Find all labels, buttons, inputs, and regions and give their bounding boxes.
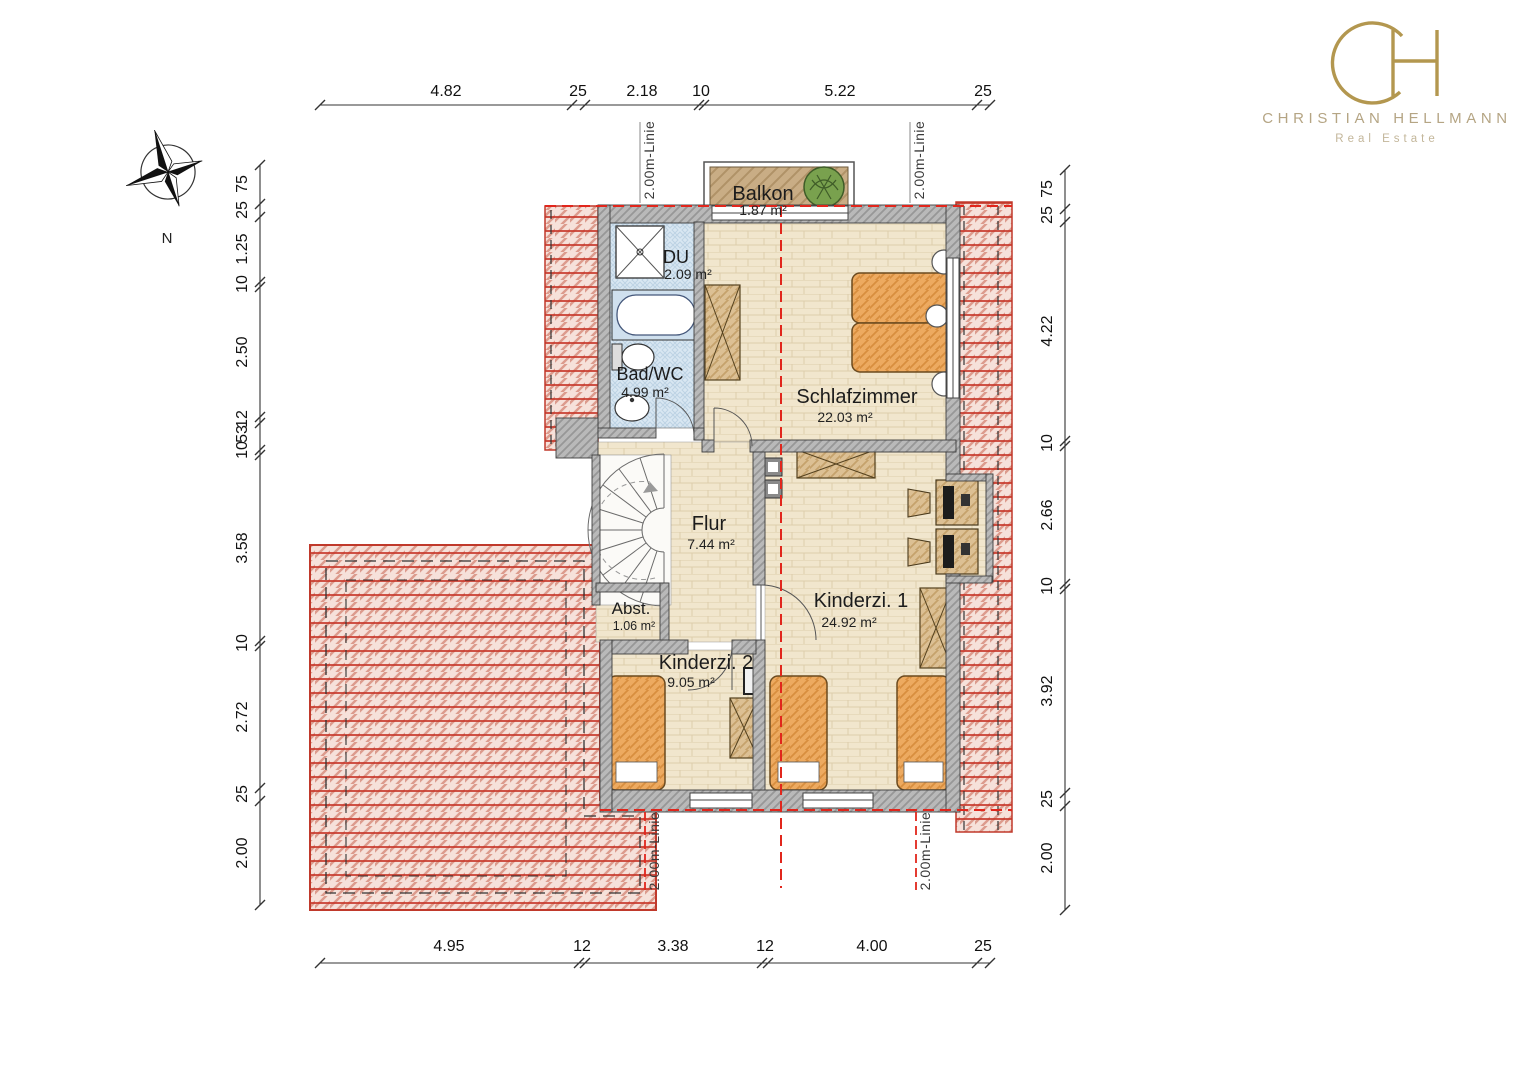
dim-left-5: 2.50 <box>234 336 251 367</box>
label-schlafzimmer-area: 22.03 m² <box>817 409 873 425</box>
height-line-label-bottom-right: 2.00m-Linie <box>917 812 933 891</box>
wall-right-lower <box>946 574 960 812</box>
shaft-1-inner <box>768 462 778 472</box>
dim-bottom-5: 4.00 <box>856 938 887 955</box>
dim-bottom-6: 25 <box>974 938 992 955</box>
wall-bath-bottom-right <box>694 428 704 440</box>
dim-top-6: 25 <box>974 83 992 100</box>
desk-1 <box>936 480 978 525</box>
wall-bay-top <box>946 474 992 481</box>
label-kinderzimmer1-area: 24.92 m² <box>821 614 877 630</box>
monitor-1-icon <box>943 486 954 519</box>
wall-bath-bottom-left <box>598 428 656 438</box>
dim-top-3: 2.18 <box>626 83 657 100</box>
dim-right-9: 2.00 <box>1039 842 1056 873</box>
label-kinderzimmer2-area: 9.05 m² <box>667 674 715 690</box>
monitor-2-icon <box>943 535 954 568</box>
dim-top-5: 5.22 <box>824 83 855 100</box>
dim-right-2: 25 <box>1039 206 1056 224</box>
label-flur-area: 7.44 m² <box>687 536 735 552</box>
label-flur: Flur <box>692 513 727 535</box>
shaft-2-inner <box>768 484 778 494</box>
label-kinderzimmer2: Kinderzi. 2 <box>659 652 754 674</box>
dim-top-2: 25 <box>569 83 587 100</box>
dim-right-5: 2.66 <box>1039 499 1056 530</box>
bathtub-icon <box>617 295 695 335</box>
dim-bottom-3: 3.38 <box>657 938 688 955</box>
chair-2 <box>908 538 930 566</box>
wall-bay-bottom <box>946 576 992 583</box>
dim-right-4: 10 <box>1039 434 1056 452</box>
label-abst-area: 1.06 m² <box>613 619 655 633</box>
wall-left <box>598 205 610 437</box>
wall-stair-outer <box>592 455 600 605</box>
dim-left-11: 2.72 <box>234 701 251 732</box>
wall-storage-top <box>596 583 668 592</box>
bedside-table-icon <box>926 305 948 327</box>
height-line-label-top-left: 2.00m-Linie <box>641 121 657 200</box>
dim-left-8: 10 <box>234 441 251 459</box>
dim-bottom-2: 12 <box>573 938 591 955</box>
dim-right-3: 4.22 <box>1039 315 1056 346</box>
dim-left-1: 75 <box>234 175 251 193</box>
dim-right-7: 3.92 <box>1039 675 1056 706</box>
dim-left-7: 53 <box>234 425 251 443</box>
dim-top-4: 10 <box>692 83 710 100</box>
floor-plan-canvas: 2.00m-Linie 2.00m-Linie 2.00m-Linie 2.00… <box>0 0 1528 1080</box>
dim-right-6: 10 <box>1039 577 1056 595</box>
dim-left-10: 10 <box>234 634 251 652</box>
dim-left-9: 3.58 <box>234 532 251 563</box>
desk-lamp-1-icon <box>961 494 970 506</box>
dim-left-12: 25 <box>234 785 251 803</box>
bed-child2-pillow <box>616 762 657 782</box>
dim-left-2: 25 <box>234 201 251 219</box>
floor-plan-page: 2.00m-Linie 2.00m-Linie 2.00m-Linie 2.00… <box>0 0 1528 1080</box>
bed-double-mattress-2 <box>852 323 952 372</box>
wall-bedroom-bottom-left <box>702 440 714 452</box>
wall-storage-right <box>660 583 669 643</box>
dim-top-1: 4.82 <box>430 83 461 100</box>
label-balkon-area: 1.87 m² <box>739 202 787 218</box>
chair-1 <box>908 489 930 517</box>
logo-tagline: Real Estate <box>1335 133 1438 145</box>
dim-bottom-4: 12 <box>756 938 774 955</box>
wall-bath-divider <box>694 222 704 440</box>
bed-child1-a-pillow <box>778 762 819 782</box>
label-du-area: 2.09 m² <box>664 266 712 282</box>
logo-company-name: CHRISTIAN HELLMANN <box>1262 110 1512 127</box>
wall-hall-child1-divider <box>753 452 765 585</box>
bed-child1-b-pillow <box>904 762 943 782</box>
label-du: DU <box>663 247 689 267</box>
label-bad-wc: Bad/WC <box>616 364 683 384</box>
wall-bay-right <box>986 474 993 582</box>
label-bad-wc-area: 4.99 m² <box>621 384 669 400</box>
dim-bottom-1: 4.95 <box>433 938 464 955</box>
desk-2 <box>936 529 978 574</box>
label-schlafzimmer: Schlafzimmer <box>796 386 917 408</box>
wall-bottom <box>612 790 960 812</box>
roof-strip-left <box>545 206 598 450</box>
compass-north-label: N <box>162 230 173 247</box>
dim-right-1: 75 <box>1039 180 1056 198</box>
dim-right-8: 25 <box>1039 790 1056 808</box>
dim-left-13: 2.00 <box>234 837 251 868</box>
dim-left-4: 10 <box>234 275 251 293</box>
wall-left-jut <box>556 418 598 458</box>
dim-left-3: 1.25 <box>234 233 251 264</box>
desk-lamp-2-icon <box>961 543 970 555</box>
height-line-label-bottom-left: 2.00m-Linie <box>646 812 662 891</box>
height-line-label-top-right: 2.00m-Linie <box>911 121 927 200</box>
wall-child2-left <box>600 640 612 812</box>
label-abst: Abst. <box>612 599 651 618</box>
wall-child1-child2-divider <box>753 640 765 790</box>
label-kinderzimmer1: Kinderzi. 1 <box>814 590 909 612</box>
